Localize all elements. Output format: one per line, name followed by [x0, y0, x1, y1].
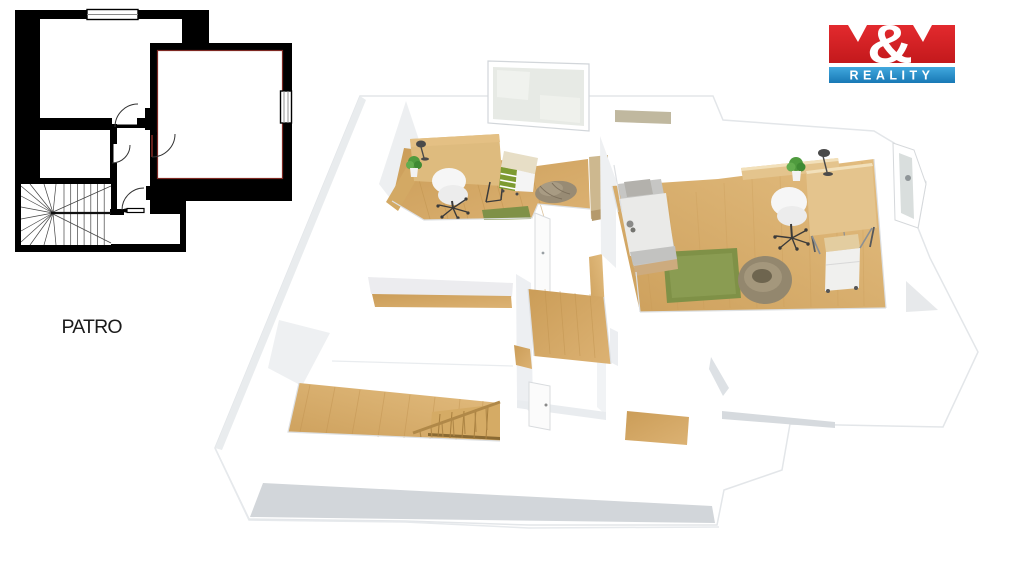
svg-text:&: & [867, 13, 913, 75]
svg-text:PATRO: PATRO [62, 316, 123, 338]
svg-text:REALITY: REALITY [850, 69, 935, 83]
